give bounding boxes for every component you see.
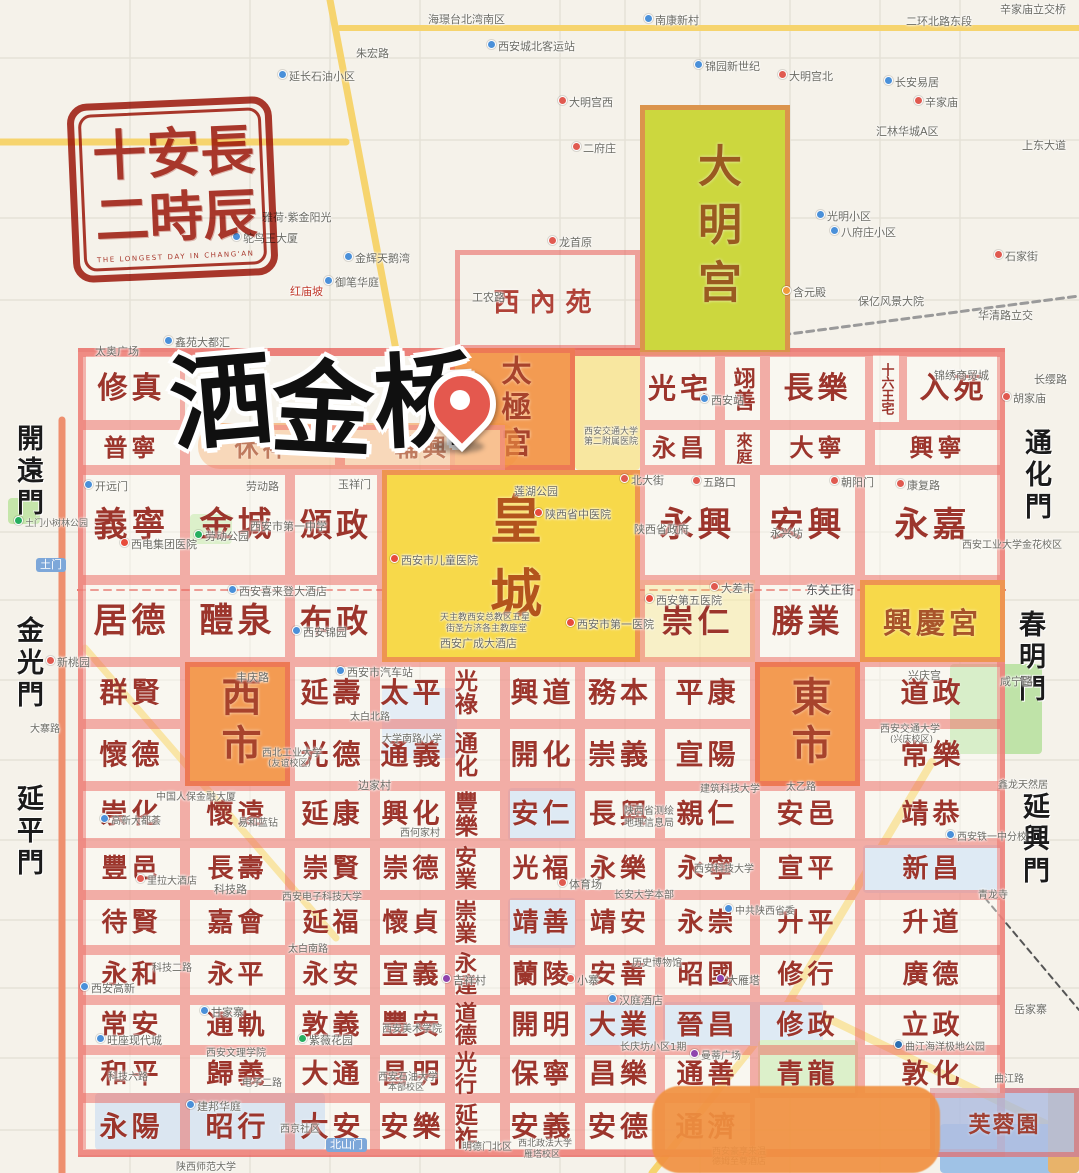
map-label: 长安大学本部 [614, 890, 674, 901]
ward-崇義: 崇義 [580, 724, 660, 786]
map-label: 大雁塔 [716, 974, 760, 987]
palace-大明宫: 大明宫 [640, 105, 790, 355]
poi-dot-icon [96, 1034, 105, 1043]
poi-dot-icon [694, 60, 703, 69]
poi-dot-icon [558, 878, 567, 887]
map-label: 西北工业大学 [262, 748, 322, 759]
map-label: 辛家庙 [914, 96, 958, 109]
poi-dot-icon [946, 830, 955, 839]
ward-修行: 修行 [755, 950, 860, 1000]
ward-興道: 興道 [505, 662, 580, 724]
ward-開明: 開明 [505, 1000, 580, 1050]
poi-dot-icon [136, 874, 145, 883]
map-label: 陕西师范大学 [176, 1162, 236, 1173]
palace-東市: 東市 [755, 662, 860, 786]
ward-豐邑: 豐邑 [78, 843, 185, 895]
poi-dot-icon [816, 210, 825, 219]
map-label: 西安市第一中学 [250, 521, 327, 533]
seal-inner-border: 十安長二時辰 THE LONGEST DAY IN CHANG'AN [78, 107, 268, 272]
poi-dot-icon [894, 1040, 903, 1049]
map-label: 雁塔校区 [524, 1151, 560, 1161]
poi-dot-icon [324, 276, 333, 285]
poi-dot-icon [120, 538, 129, 547]
map-label: 太乙路 [786, 782, 816, 793]
ward-光宅: 光宅 [640, 352, 720, 425]
gate-延平門: 延平門 [14, 784, 41, 880]
map-label: 吉祥村 [442, 974, 486, 987]
ward-普寧: 普寧 [78, 425, 185, 470]
map-label: 大明宫西 [558, 96, 613, 109]
map-label: 边家村 [358, 780, 391, 792]
pin-hole [450, 390, 470, 410]
ward-升道: 升道 [860, 895, 1005, 950]
poi-dot-icon [487, 40, 496, 49]
map-label: 光明小区 [816, 210, 871, 223]
map-label: 科技路 [214, 884, 247, 896]
ward-宣陽: 宣陽 [660, 724, 755, 786]
map-label: (兴庆校区) [890, 736, 933, 746]
map-label: 西安第五医院 [645, 594, 722, 607]
gate-開遠門: 開遠門 [14, 424, 41, 520]
map-label: 西安站 [700, 394, 744, 407]
poi-dot-icon [692, 476, 701, 485]
ward-居德: 居德 [78, 580, 185, 662]
map-label: 西安城北客运站 [487, 40, 575, 53]
map-label: 曼蒂广场 [690, 1049, 741, 1062]
seal-char: 辰 [202, 182, 259, 248]
map-label: 太奥广场 [95, 346, 139, 358]
map-label: 甘家寨 [200, 1006, 244, 1019]
map-label: 东关正街 [806, 584, 854, 597]
poi-dot-icon [100, 814, 109, 823]
map-label: 天主教西安总教区五星 [440, 614, 530, 624]
map-label: 西京社区 [280, 1124, 320, 1135]
map-label: 历史博物馆 [632, 958, 682, 969]
poi-dot-icon [344, 252, 353, 261]
ward-十六王宅: 十六王宅 [870, 352, 902, 425]
map-label: 龙首原 [548, 236, 592, 249]
map-label: 地理信息局 [624, 818, 674, 829]
map-label: 汇林华城A区 [876, 126, 939, 138]
ward-長樂: 長樂 [765, 352, 870, 425]
ward-昌樂: 昌樂 [580, 1050, 660, 1098]
ward-群賢: 群賢 [78, 662, 185, 724]
poi-dot-icon [558, 96, 567, 105]
changan-twelve-hours-seal: 十安長二時辰 THE LONGEST DAY IN CHANG'AN [66, 96, 279, 284]
ward-崇賢: 崇賢 [290, 843, 375, 895]
map-label: 科技六路 [108, 1072, 148, 1083]
map-label: 西安工业大学金花校区 [962, 540, 1062, 551]
map-label: 里拉大酒店 [136, 874, 197, 887]
map-label: 保亿风景大院 [858, 296, 924, 308]
map-canvas: 大明宫西內苑太極宮皇城西市東市興慶宮芙蓉園 修真光宅翊善長樂十六王宅入苑普寧休祥… [0, 0, 1079, 1173]
ward-光行: 光行 [450, 1050, 505, 1098]
map-label: 开远门 [84, 480, 128, 493]
poi-dot-icon [724, 904, 733, 913]
map-label: 延长石油小区 [278, 70, 355, 83]
map-label: 西安广成大酒店 [440, 638, 517, 650]
ward-永陽: 永陽 [78, 1098, 185, 1155]
map-label: 明德门北区 [462, 1142, 512, 1153]
map-label: 新桃园 [46, 656, 90, 669]
poi-dot-icon [710, 582, 719, 591]
map-label: 永兴坊 [770, 528, 803, 540]
map-label: 南康新村 [644, 14, 699, 27]
map-label: 御笔华庭 [324, 276, 379, 289]
map-label: 小寨 [566, 974, 599, 987]
ward-光祿: 光祿 [450, 662, 505, 724]
map-label: 西安科技大学 [694, 864, 754, 875]
map-label: 曲江海洋极地公园 [894, 1040, 985, 1053]
ward-開化: 開化 [505, 724, 580, 786]
map-label: 华清路立交 [978, 310, 1033, 322]
poi-dot-icon [778, 70, 787, 79]
ward-入苑: 入苑 [902, 352, 1005, 425]
ward-安德: 安德 [580, 1098, 660, 1155]
map-label: 西安市儿童医院 [390, 554, 478, 567]
map-label: 大学南路小学 [382, 734, 442, 745]
map-label: 建筑科技大学 [700, 784, 760, 795]
ward-務本: 務本 [580, 662, 660, 724]
gate-通化門: 通化門 [1022, 428, 1049, 524]
poi-dot-icon [782, 286, 791, 295]
map-label: 建邦华庭 [186, 1100, 241, 1113]
ward-永安: 永安 [290, 950, 375, 1000]
ward-宣平: 宣平 [755, 843, 860, 895]
poi-dot-icon [645, 594, 654, 603]
map-label: 西安美术学院 [382, 1024, 442, 1035]
map-label: 西安锦园 [292, 626, 347, 639]
map-label: 锦绣商贸城 [934, 370, 989, 382]
ward-安樂: 安樂 [375, 1098, 450, 1155]
map-label: 科技二路 [152, 963, 192, 974]
map-label: 街圣方济各主教座堂 [446, 625, 527, 635]
map-label: 中国人保金融大厦 [156, 792, 236, 803]
map-label: 长缨路 [1034, 374, 1067, 386]
ward-翊善: 翊善 [720, 352, 765, 425]
poi-dot-icon [572, 142, 581, 151]
location-pin-icon [420, 368, 500, 463]
poi-dot-icon [884, 76, 893, 85]
map-label: 西安文理学院 [206, 1048, 266, 1059]
poi-dot-icon [566, 974, 575, 983]
map-label: 西安交通大学 [880, 724, 940, 735]
poi-dot-icon [644, 14, 653, 23]
ward-崇業: 崇業 [450, 895, 505, 950]
map-label: 汉庭酒店 [608, 994, 663, 1007]
map-label: 陕西省中医院 [534, 508, 611, 521]
poi-dot-icon [700, 394, 709, 403]
map-label: 土门 [36, 558, 66, 572]
map-label: 中共陕西省委 [724, 904, 795, 917]
poi-dot-icon [186, 1100, 195, 1109]
map-label: 太白北路 [350, 712, 390, 723]
map-label: 五路口 [692, 476, 736, 489]
ward-宣義: 宣義 [375, 950, 450, 1000]
ward-新昌: 新昌 [860, 843, 1005, 895]
seal-char: 二 [94, 187, 151, 253]
poi-dot-icon [830, 476, 839, 485]
poi-dot-icon [914, 96, 923, 105]
map-label: 二府庄 [572, 142, 616, 155]
map-label: 西安高新 [80, 982, 135, 995]
seal-characters: 十安長二時辰 [91, 119, 253, 254]
poi-dot-icon [608, 994, 617, 1003]
map-label: 西安喜来登大酒店 [228, 585, 327, 598]
ward-來庭: 來庭 [720, 425, 765, 470]
gate-金光門: 金光門 [14, 616, 41, 712]
poi-dot-icon [620, 474, 629, 483]
map-label: 康复路 [896, 479, 940, 492]
ward-保寧: 保寧 [505, 1050, 580, 1098]
ward-永昌: 永昌 [640, 425, 720, 470]
poi-dot-icon [390, 554, 399, 563]
poi-dot-icon [164, 336, 173, 345]
ward-永平: 永平 [185, 950, 290, 1000]
map-label: 西安电子科技大学 [282, 892, 362, 903]
poi-dot-icon [830, 226, 839, 235]
map-label: 咸宁路 [1000, 676, 1033, 688]
poi-dot-icon [278, 70, 287, 79]
map-label: 西安铁一中分校 [946, 830, 1027, 843]
map-label: 西安市汽车站 [336, 666, 413, 679]
map-label: (友谊校区) [268, 760, 311, 770]
map-label: 大寨路 [30, 724, 60, 735]
map-label: 西电集团医院 [120, 538, 197, 551]
map-label: 辛家庙立交桥 [1000, 4, 1066, 16]
ward-懷貞: 懷貞 [375, 895, 450, 950]
palace-興慶宮: 興慶宮 [860, 580, 1005, 662]
poi-dot-icon [534, 508, 543, 517]
ward-延福: 延福 [290, 895, 375, 950]
poi-dot-icon [298, 1034, 307, 1043]
ward-延康: 延康 [290, 786, 375, 843]
map-label: 西安市第一医院 [566, 618, 654, 631]
map-label: 岳家寨 [1014, 1004, 1047, 1016]
title-char: 金 [269, 357, 376, 464]
ward-大寧: 大寧 [765, 425, 870, 470]
map-label: 石家街 [994, 250, 1038, 263]
map-label: 红庙坡 [290, 286, 323, 298]
poi-dot-icon [46, 656, 55, 665]
map-label: 劳动路 [246, 481, 279, 493]
map-label: 含元殿 [782, 286, 826, 299]
poi-dot-icon [896, 479, 905, 488]
poi-dot-icon [228, 585, 237, 594]
poi-dot-icon [566, 618, 575, 627]
map-label: 曲江路 [994, 1074, 1024, 1085]
ward-興寧: 興寧 [870, 425, 1005, 470]
poi-dot-icon [80, 982, 89, 991]
map-label: 旺座现代城 [96, 1034, 162, 1047]
ward-道德: 道德 [450, 1000, 505, 1050]
seal-outer-border: 十安長二時辰 THE LONGEST DAY IN CHANG'AN [66, 96, 279, 284]
map-label: 金辉天鹅湾 [344, 252, 410, 265]
gate-春明門: 春明門 [1016, 610, 1043, 706]
map-label: 玉祥门 [338, 479, 371, 491]
map-label: 长安易居 [884, 76, 939, 89]
map-label: 电子二路 [242, 1078, 282, 1089]
seal-char: 十 [91, 123, 148, 189]
ward-靖善: 靖善 [505, 895, 580, 950]
poi-dot-icon [200, 1006, 209, 1015]
seal-char: 安 [145, 121, 202, 187]
poi-dot-icon [336, 666, 345, 675]
map-label: 西何家村 [400, 828, 440, 839]
map-label: 北大街 [620, 474, 664, 487]
map-label: 莲湖公园 [514, 486, 558, 498]
ward-大通: 大通 [290, 1050, 375, 1098]
map-label: 西北政法大学 [518, 1140, 572, 1150]
poi-dot-icon [1002, 392, 1011, 401]
poi-dot-icon [994, 250, 1003, 259]
map-label: 丰庆路 [236, 672, 269, 684]
poi-dot-icon [442, 974, 451, 983]
ward-修政: 修政 [755, 1000, 860, 1050]
poi-dot-icon [84, 480, 93, 489]
map-label: 太白南路 [288, 944, 328, 955]
map-label: 陕西省测绘 [624, 806, 674, 817]
ward-平康: 平康 [660, 662, 755, 724]
map-label: 土门小树林公园 [14, 516, 88, 530]
map-label: 上东大道 [1022, 140, 1066, 152]
ward-待賢: 待賢 [78, 895, 185, 950]
map-label: 胡家庙 [1002, 392, 1046, 405]
poi-dot-icon [716, 974, 725, 983]
map-label: 西安石油大学 [378, 1072, 438, 1083]
seal-char: 長 [199, 118, 256, 184]
map-label: 八府庄小区 [830, 226, 896, 239]
map-label: 兴庆宫 [908, 670, 941, 682]
map-label: 二环北路东段 [906, 16, 972, 28]
poi-dot-icon [548, 236, 557, 245]
ward-廣德: 廣德 [860, 950, 1005, 1000]
ward-安仁: 安仁 [505, 786, 580, 843]
map-label: 紫薇花园 [298, 1034, 353, 1047]
map-label: 体育场 [558, 878, 602, 891]
ward-安邑: 安邑 [755, 786, 860, 843]
map-label: 锦园新世纪 [694, 60, 760, 73]
ward-嘉會: 嘉會 [185, 895, 290, 950]
map-label: 朝阳门 [830, 476, 874, 489]
map-label: 北山门 [326, 1138, 367, 1152]
poi-dot-icon [690, 1049, 699, 1058]
ward-安業: 安業 [450, 843, 505, 895]
map-label: 易和蓝钻 [238, 818, 278, 829]
palace-芙蓉園: 芙蓉園 [930, 1088, 1079, 1157]
map-label: 陕西省政府 [634, 524, 689, 536]
title-char: 洒 [166, 348, 277, 459]
ward-靖安: 靖安 [580, 895, 660, 950]
map-label: 朱宏路 [356, 48, 389, 60]
map-label: 鑫龙天然居 [998, 780, 1048, 791]
seal-char: 時 [148, 185, 205, 251]
poi-dot-icon [14, 516, 23, 525]
map-label: 本部校区 [388, 1084, 424, 1094]
ward-懷德: 懷德 [78, 724, 185, 786]
map-label: 长庆坊小区1期 [620, 1042, 686, 1053]
map-label: 海璟台北湾南区 [428, 14, 505, 26]
poi-dot-icon [292, 626, 301, 635]
map-label: 劳动公园 [194, 530, 249, 543]
ward-崇德: 崇德 [375, 843, 450, 895]
map-label: 工农路 [472, 292, 505, 304]
ward-豐樂: 豐樂 [450, 786, 505, 843]
map-label: 第二附属医院 [584, 438, 638, 448]
ward-通化: 通化 [450, 724, 505, 786]
map-label: 大明宫北 [778, 70, 833, 83]
map-label: 青龙寺 [978, 890, 1008, 901]
orange-overlay-blob [652, 1086, 940, 1173]
map-label: 高新大都荟 [100, 814, 161, 827]
